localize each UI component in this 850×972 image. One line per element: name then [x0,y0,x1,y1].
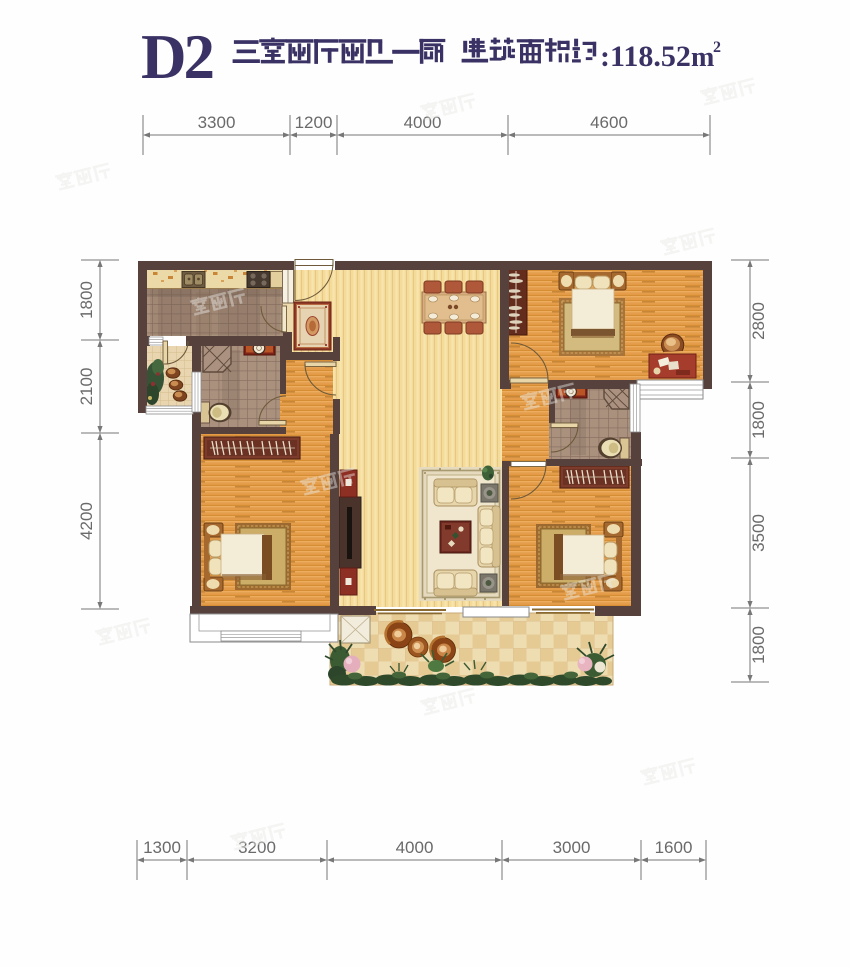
svg-text:3000: 3000 [553,838,591,857]
svg-text:4600: 4600 [590,113,628,132]
svg-text:4200: 4200 [77,502,96,540]
svg-text:1200: 1200 [295,113,333,132]
svg-text::118.52: :118.52 [600,40,691,73]
svg-text:1600: 1600 [655,838,693,857]
svg-text:m: m [691,42,714,73]
svg-text:1300: 1300 [143,838,181,857]
svg-text:2800: 2800 [749,302,768,340]
svg-text:4000: 4000 [396,838,434,857]
svg-text:1800: 1800 [749,401,768,439]
svg-text:2: 2 [713,39,721,56]
svg-text:1800: 1800 [749,626,768,664]
svg-text:D2: D2 [141,22,212,92]
svg-text:3300: 3300 [198,113,236,132]
svg-text:2100: 2100 [77,368,96,406]
svg-text:1800: 1800 [77,281,96,319]
svg-text:3500: 3500 [749,514,768,552]
